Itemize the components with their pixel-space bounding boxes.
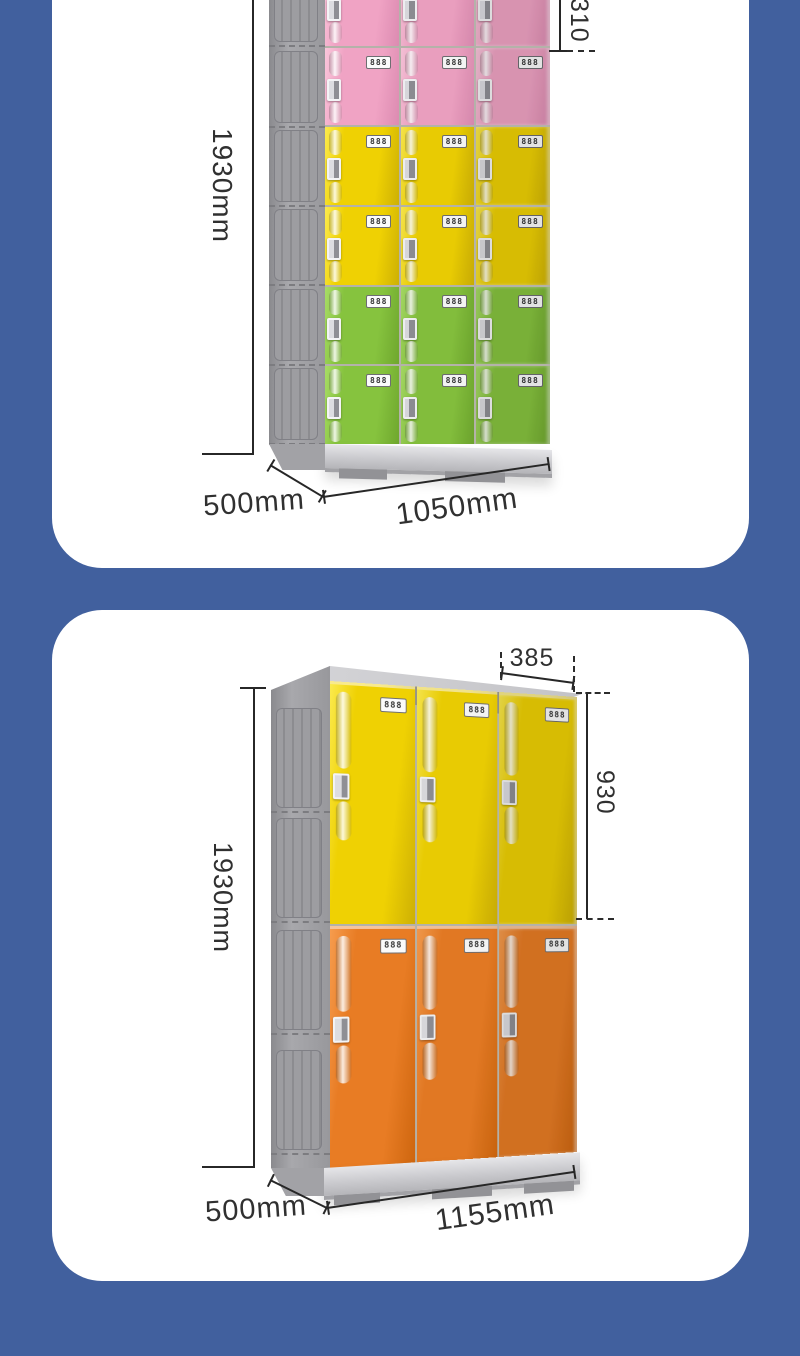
door-pitch-label: 310 — [564, 0, 593, 43]
door-handle — [502, 1013, 517, 1038]
door-handle — [478, 79, 492, 101]
door-hinge-ridge — [480, 261, 493, 282]
door-width-guide-left — [500, 652, 502, 678]
lock-display: 888 — [366, 135, 391, 148]
door-hinge-ridge — [422, 1042, 437, 1080]
door-hinge-ridge — [405, 130, 418, 155]
door-pitch-dimension-line — [559, 0, 561, 51]
door-handle — [327, 79, 341, 101]
locker-door-pink: 888 — [401, 0, 475, 46]
product-page: { "page": {"background_color": "#41609E"… — [0, 0, 800, 1356]
door-handle — [327, 158, 341, 180]
locker-door-yellow: 888 — [330, 681, 415, 924]
door-handle — [327, 318, 341, 340]
door-hinge-ridge — [505, 935, 519, 1008]
locker-door-yellow: 888 — [476, 207, 550, 285]
locker-door-orange: 888 — [499, 925, 576, 1157]
door-hinge-ridge — [329, 102, 342, 123]
lock-display: 888 — [545, 938, 569, 952]
two-tier-locker-front: 888888888888888888 — [330, 681, 577, 1168]
door-hinge-ridge — [480, 130, 493, 155]
door-handle — [478, 397, 492, 419]
locker-base-side — [269, 444, 325, 470]
door-hinge-ridge — [329, 261, 342, 282]
lock-display: 888 — [545, 707, 569, 723]
side-panel-rib — [274, 289, 318, 361]
side-panel-seam — [271, 811, 330, 813]
side-panel-seam — [271, 921, 330, 923]
side-panel-seam — [269, 45, 325, 47]
side-panel-rib — [276, 708, 322, 808]
locker-door-green: 888 — [476, 287, 550, 365]
lock-display: 888 — [464, 938, 489, 953]
door-width-label: 385 — [482, 644, 582, 673]
lock-display: 888 — [380, 697, 406, 713]
locker-foot — [339, 468, 387, 479]
door-pitch-tick — [549, 50, 569, 52]
locker-door-pink: 888 — [325, 48, 399, 126]
locker-door-green: 888 — [401, 366, 475, 444]
door-hinge-ridge — [480, 210, 493, 235]
door-hinge-ridge — [329, 290, 342, 315]
door-hinge-ridge — [405, 182, 418, 203]
door-height-guide-top — [576, 692, 610, 694]
side-panel-seam — [271, 1153, 330, 1155]
door-handle — [403, 238, 417, 260]
door-handle — [478, 0, 492, 21]
door-hinge-ridge — [480, 341, 493, 362]
lock-display: 888 — [442, 135, 467, 148]
door-handle — [403, 158, 417, 180]
door-handle — [403, 79, 417, 101]
lock-display: 888 — [442, 295, 467, 308]
door-handle — [478, 238, 492, 260]
door-handle — [327, 397, 341, 419]
height-dimension-line — [253, 688, 255, 1168]
door-handle — [419, 776, 435, 802]
side-panel-seam — [269, 284, 325, 286]
door-hinge-ridge — [405, 341, 418, 362]
door-handle — [333, 1017, 350, 1043]
door-hinge-ridge — [329, 369, 342, 394]
side-panel-seam — [269, 126, 325, 128]
locker-side-panel — [271, 666, 330, 1168]
side-panel-rib — [274, 0, 318, 42]
door-width-dimension-line — [501, 672, 575, 684]
door-handle — [403, 0, 417, 21]
locker-door-green: 888 — [325, 366, 399, 444]
locker-side-panel — [269, 0, 325, 444]
door-hinge-ridge — [336, 692, 352, 769]
door-hinge-ridge — [480, 369, 493, 394]
side-panel-seam — [269, 364, 325, 366]
door-hinge-ridge — [480, 22, 493, 43]
door-width-guide-right — [573, 656, 575, 692]
lock-display: 888 — [442, 215, 467, 228]
door-handle — [333, 773, 350, 800]
door-handle — [403, 397, 417, 419]
height-dimension-label: 1930mm — [206, 128, 238, 243]
depth-dimension-label: 500mm — [199, 1189, 313, 1230]
locker-door-pink: 888 — [476, 0, 550, 46]
door-hinge-ridge — [329, 210, 342, 235]
side-panel-seam — [271, 1033, 330, 1035]
door-handle — [478, 318, 492, 340]
lock-display: 888 — [518, 374, 543, 387]
door-hinge-ridge — [480, 421, 493, 442]
door-hinge-ridge — [405, 22, 418, 43]
height-dimension-line — [252, 0, 254, 455]
product-card-six-tier: 8888888888888888888888888888888888888888… — [52, 0, 749, 568]
door-height-label: 930 — [590, 770, 619, 815]
door-height-guide-bottom — [576, 918, 614, 920]
door-handle — [419, 1015, 435, 1041]
door-height-dimension-line — [586, 693, 588, 919]
locker-door-pink: 888 — [325, 0, 399, 46]
height-dimension-tick-top — [240, 687, 266, 689]
door-pitch-guide-dashed — [567, 50, 595, 52]
lock-display: 888 — [366, 295, 391, 308]
locker-door-pink: 888 — [476, 48, 550, 126]
door-handle — [403, 318, 417, 340]
door-hinge-ridge — [405, 261, 418, 282]
side-panel-rib — [276, 1050, 322, 1150]
door-hinge-ridge — [329, 341, 342, 362]
door-hinge-ridge — [329, 182, 342, 203]
locker-door-yellow: 888 — [499, 692, 576, 924]
lock-display: 888 — [442, 374, 467, 387]
locker-door-green: 888 — [325, 287, 399, 365]
lock-display: 888 — [380, 938, 406, 953]
door-hinge-ridge — [422, 935, 437, 1010]
door-hinge-ridge — [422, 804, 437, 842]
door-hinge-ridge — [329, 51, 342, 76]
lock-display: 888 — [518, 56, 543, 69]
door-hinge-ridge — [405, 290, 418, 315]
lock-display: 888 — [464, 702, 489, 718]
height-dimension-label: 1930mm — [207, 842, 238, 953]
door-hinge-ridge — [480, 102, 493, 123]
locker-door-yellow: 888 — [325, 207, 399, 285]
locker-door-yellow: 888 — [417, 687, 498, 924]
locker-door-yellow: 888 — [476, 127, 550, 205]
side-panel-rib — [274, 368, 318, 440]
locker-door-orange: 888 — [330, 925, 415, 1168]
door-hinge-ridge — [336, 802, 352, 841]
door-hinge-ridge — [422, 697, 437, 772]
door-hinge-ridge — [405, 102, 418, 123]
door-handle — [502, 780, 517, 805]
locker-door-green: 888 — [401, 287, 475, 365]
door-handle — [327, 238, 341, 260]
locker-door-orange: 888 — [417, 925, 498, 1162]
door-hinge-ridge — [405, 210, 418, 235]
door-hinge-ridge — [405, 51, 418, 76]
side-panel-seam — [269, 205, 325, 207]
side-panel-rib — [274, 130, 318, 202]
lock-display: 888 — [518, 215, 543, 228]
door-hinge-ridge — [405, 369, 418, 394]
door-hinge-ridge — [336, 936, 352, 1013]
side-panel-rib — [274, 209, 318, 281]
side-panel-rib — [276, 818, 322, 918]
door-hinge-ridge — [505, 807, 519, 844]
door-hinge-ridge — [329, 22, 342, 43]
door-hinge-ridge — [505, 1040, 519, 1077]
side-panel-rib — [276, 930, 322, 1030]
door-handle — [478, 158, 492, 180]
locker-door-yellow: 888 — [401, 207, 475, 285]
depth-dimension-label: 500mm — [197, 483, 311, 524]
locker-door-yellow: 888 — [401, 127, 475, 205]
lock-display: 888 — [366, 374, 391, 387]
door-hinge-ridge — [329, 421, 342, 442]
locker-base — [325, 444, 552, 478]
door-hinge-ridge — [505, 702, 519, 776]
door-handle — [327, 0, 341, 21]
height-dimension-tick-bottom — [202, 1166, 255, 1168]
width-dimension-label: 1050mm — [388, 481, 525, 533]
locker-door-green: 888 — [476, 366, 550, 444]
lock-display: 888 — [518, 135, 543, 148]
locker-door-pink: 888 — [401, 48, 475, 126]
locker-door-yellow: 888 — [325, 127, 399, 205]
door-hinge-ridge — [405, 421, 418, 442]
door-hinge-ridge — [329, 130, 342, 155]
lock-display: 888 — [442, 56, 467, 69]
lock-display: 888 — [518, 295, 543, 308]
door-hinge-ridge — [480, 290, 493, 315]
lock-display: 888 — [366, 215, 391, 228]
side-panel-rib — [274, 51, 318, 123]
door-hinge-ridge — [336, 1045, 352, 1084]
six-tier-locker-front: 8888888888888888888888888888888888888888… — [325, 0, 550, 444]
door-hinge-ridge — [480, 182, 493, 203]
height-dimension-tick — [202, 453, 254, 455]
product-card-two-tier: 888888888888888888 1930mm 385 930 500mm … — [52, 610, 749, 1281]
lock-display: 888 — [366, 56, 391, 69]
door-hinge-ridge — [480, 51, 493, 76]
